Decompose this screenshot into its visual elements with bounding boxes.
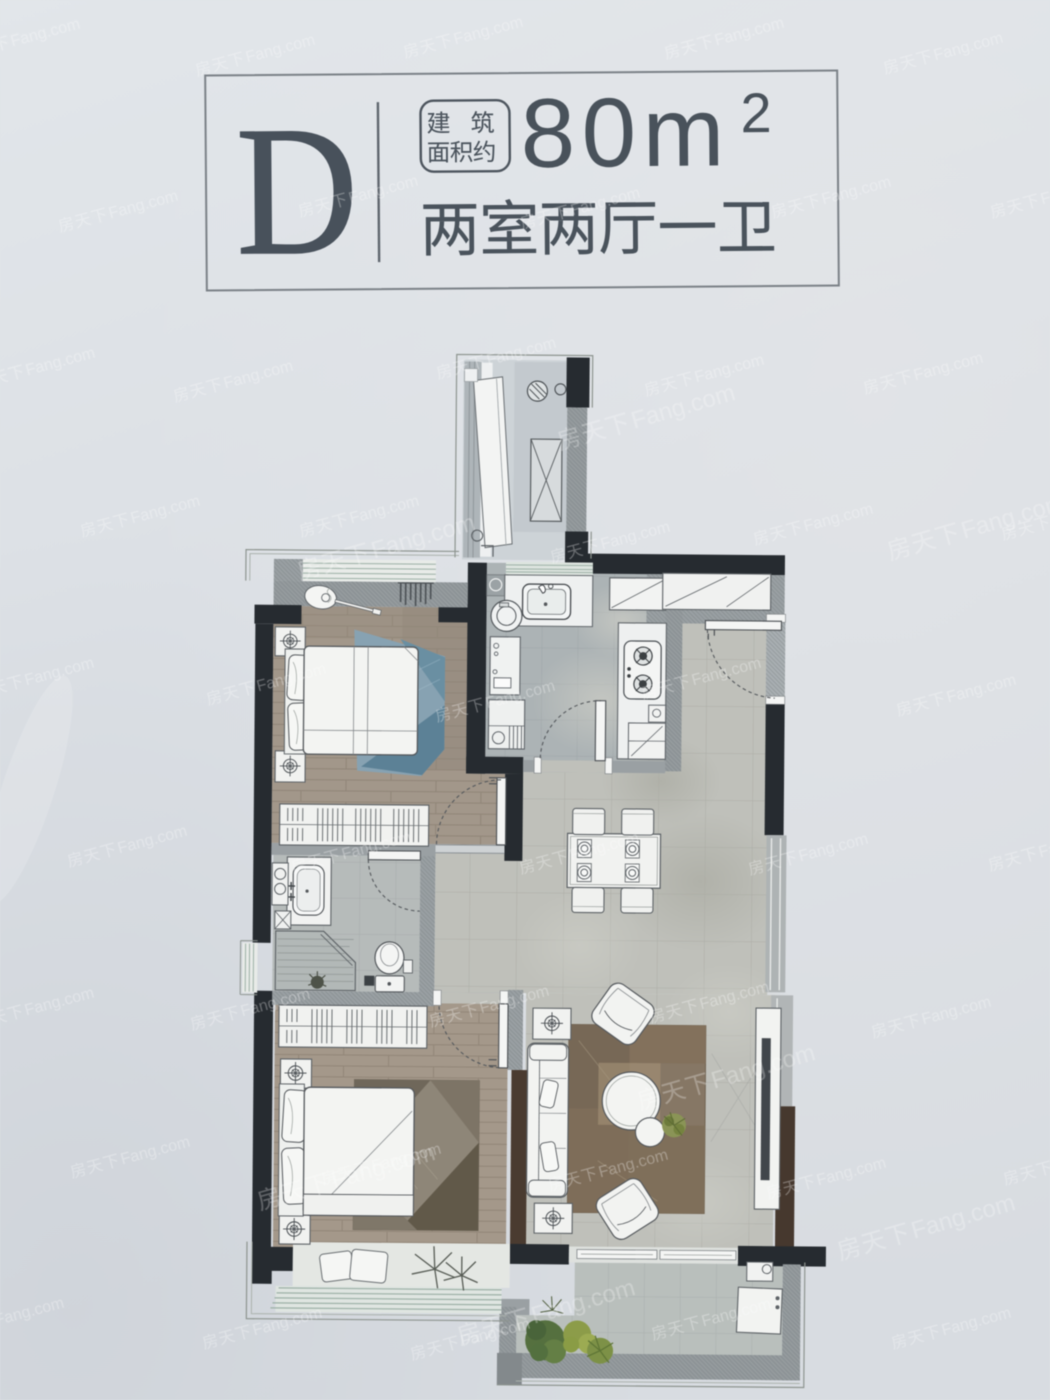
svg-text:80m: 80m <box>520 76 731 188</box>
svg-text:2: 2 <box>740 81 772 144</box>
svg-text:D: D <box>235 88 359 294</box>
